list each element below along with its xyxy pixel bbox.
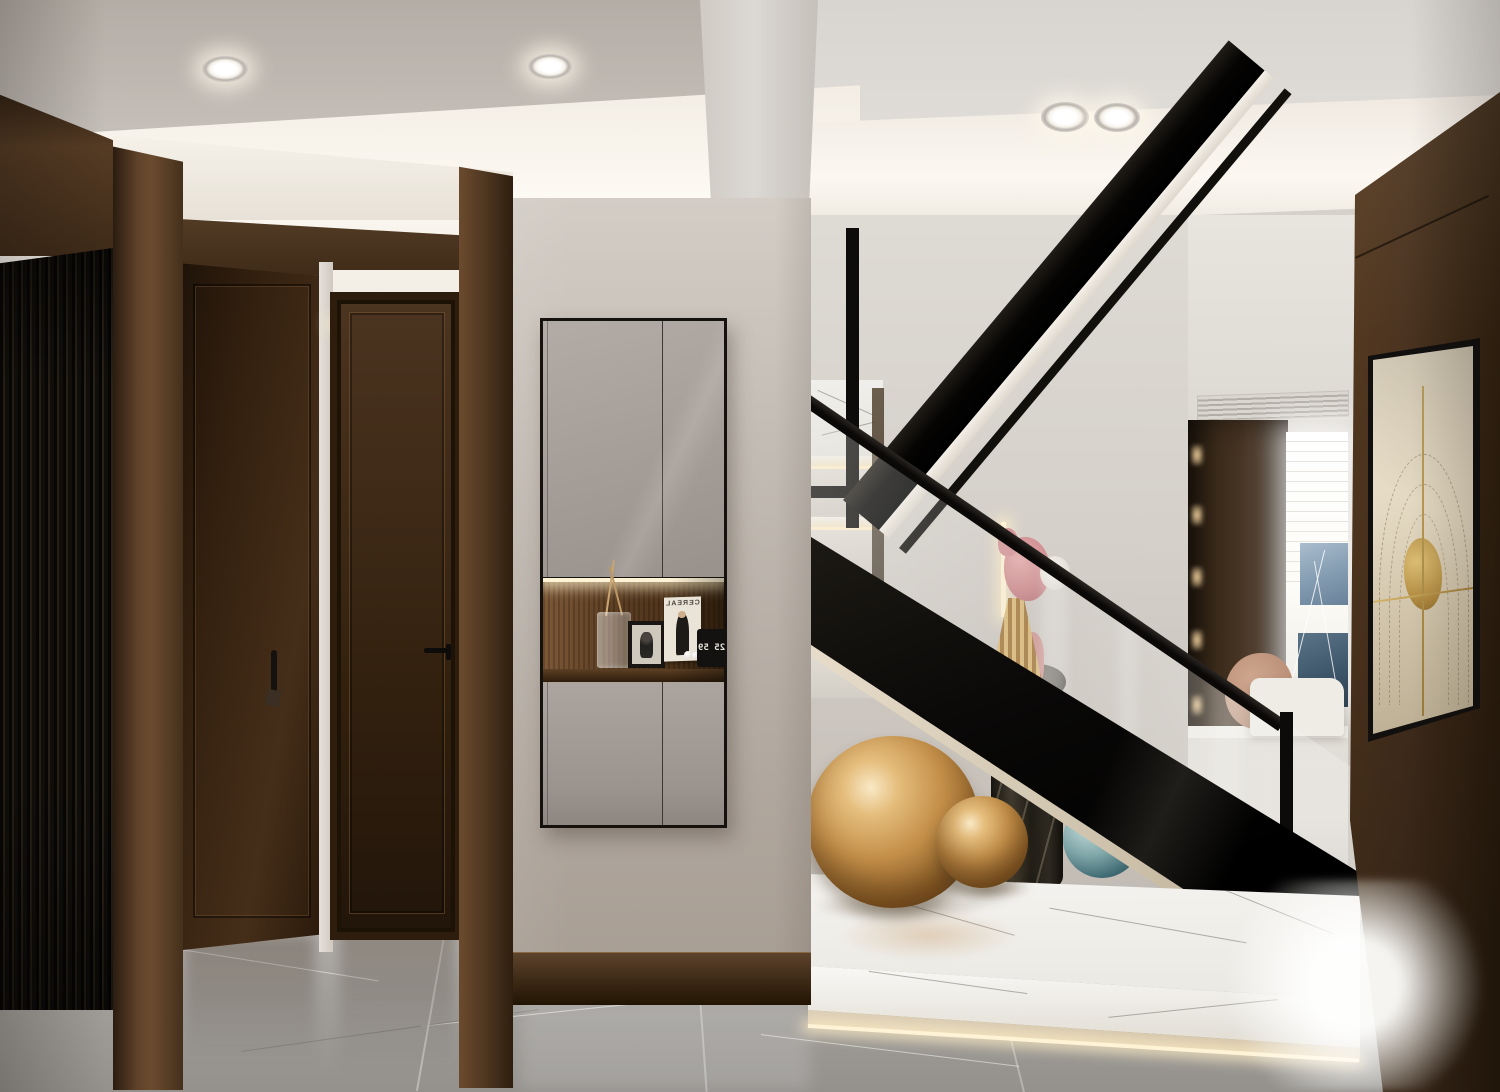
walnut-door-center [337, 300, 455, 932]
framed-photo-small [628, 621, 665, 668]
interior-photo: CEREAL 25 59 [0, 0, 1500, 1092]
wood-pilaster [459, 148, 513, 1088]
art-shadow [1373, 346, 1473, 734]
downlight-icon [202, 56, 248, 82]
flip-clock: 25 59 [697, 629, 727, 667]
ceiling-bulkhead [700, 0, 818, 218]
shelf-light-spot [1191, 567, 1203, 587]
downlight-icon [1094, 103, 1140, 132]
floor-light-bloom [1215, 880, 1495, 1090]
center-wall-baseboard [513, 952, 811, 1005]
magazine-title: CEREAL [665, 599, 700, 607]
shelf-light-spot [1191, 505, 1203, 525]
floor-wall-reflection [520, 1000, 810, 1090]
wood-pilaster [113, 135, 183, 1090]
framed-artwork [1366, 338, 1480, 742]
walnut-door-left [183, 258, 319, 950]
magazine-figure [676, 613, 689, 655]
cabinet-lower-doors [543, 682, 724, 825]
floor-door-reflection [340, 930, 455, 1070]
photo-figure [640, 632, 653, 658]
door-handle-rose [446, 644, 451, 660]
artwork-canvas [1373, 346, 1473, 734]
shelf-light-spot [1191, 445, 1203, 465]
cabinet-upper-doors [543, 321, 724, 577]
shelf-light-spot [1191, 630, 1203, 650]
downlight-icon [1041, 102, 1089, 132]
gold-sphere-small [936, 796, 1028, 888]
far-room-ceiling [1188, 215, 1360, 420]
black-slat-panel [0, 248, 113, 1010]
glass-vase [597, 612, 631, 668]
ac-vent-grille [1197, 390, 1349, 421]
deco-sphere-small [684, 651, 692, 659]
downlight-icon [528, 54, 572, 79]
wall-cabinet [540, 318, 727, 828]
door-handle-icon [271, 650, 277, 692]
clock-digits: 25 59 [698, 643, 725, 653]
floor-door-reflection [185, 935, 315, 1065]
